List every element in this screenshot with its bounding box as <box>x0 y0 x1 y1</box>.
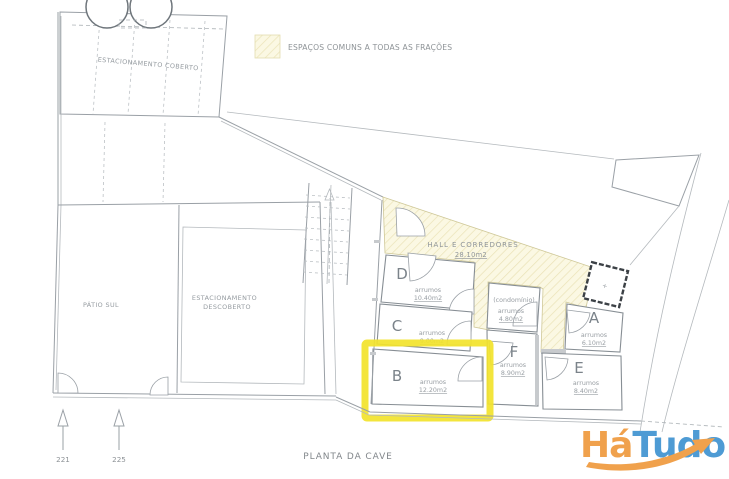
room-b: B arrumos 12.20m2 <box>372 349 483 407</box>
hall-area-value: 28.10m2 <box>455 251 487 259</box>
room-f: F arrumos 8.90m2 <box>487 330 539 406</box>
marker-221: 221 <box>56 455 70 464</box>
room-e-use: arrumos <box>573 380 599 387</box>
floor-plan-canvas: ESTACIONAMENTO COBERTO PÁTIO SUL ESTACIO… <box>0 0 729 479</box>
room-condominio: (condomínio) arrumos 4.80m2 <box>487 283 540 332</box>
wall-poche <box>535 335 539 405</box>
condominio-area: 4.80m2 <box>499 316 523 323</box>
room-f-use: arrumos <box>500 362 526 369</box>
room-d-use: arrumos <box>415 287 441 294</box>
room-d-letter: D <box>396 265 408 283</box>
room-a: A arrumos 6.10m2 <box>565 304 623 352</box>
room-e-letter: E <box>574 359 583 377</box>
open-parking-label-line1: ESTACIONAMENTO <box>192 294 257 302</box>
room-f-area: 8.90m2 <box>501 370 525 377</box>
room-f-letter: F <box>510 343 519 361</box>
condominio-name: (condomínio) <box>493 296 535 304</box>
room-b-area: 12.20m2 <box>419 387 447 394</box>
open-parking-label-line2: DESCOBERTO <box>203 303 251 311</box>
room-a-use: arrumos <box>581 332 607 339</box>
condominio-use: arrumos <box>498 308 524 315</box>
room-a-letter: A <box>589 309 600 327</box>
room-c-use: arrumos <box>419 330 445 337</box>
hall-label: HALL E CORREDORES <box>427 241 518 249</box>
room-e-area: 8.40m2 <box>574 388 598 395</box>
room-d-area: 10.40m2 <box>414 295 442 302</box>
patio-sul-label: PÁTIO SUL <box>83 300 119 309</box>
marker-225: 225 <box>112 455 126 464</box>
room-e: E arrumos 8.40m2 <box>541 349 622 410</box>
room-a-area: 6.10m2 <box>582 340 606 347</box>
room-c-letter: C <box>392 317 402 335</box>
room-b-letter: B <box>392 367 402 385</box>
room-b-use: arrumos <box>420 379 446 386</box>
hatudo-logo-part2: Tudo <box>632 425 725 466</box>
legend-swatch <box>255 35 280 58</box>
plan-title: PLANTA DA CAVE <box>303 452 392 462</box>
hatudo-logo: HáTudo <box>580 425 725 471</box>
legend-label: ESPAÇOS COMUNS A TODAS AS FRAÇÕES <box>288 43 452 52</box>
hatudo-logo-part1: Há <box>580 425 632 466</box>
floor-plan-image: ESTACIONAMENTO COBERTO PÁTIO SUL ESTACIO… <box>0 0 729 479</box>
